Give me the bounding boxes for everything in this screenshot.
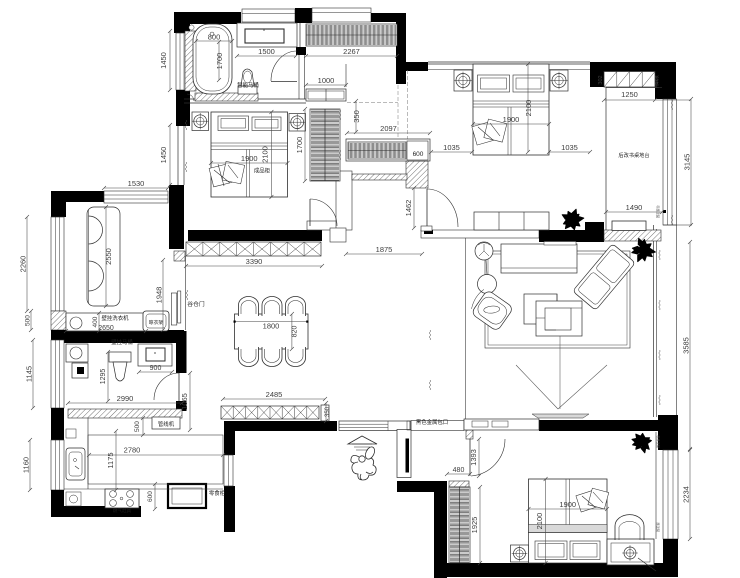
svg-text:1900: 1900 (559, 500, 576, 509)
svg-text:1700: 1700 (295, 137, 304, 154)
svg-text:1500: 1500 (258, 47, 275, 56)
svg-text:2100: 2100 (535, 513, 544, 530)
svg-text:2485: 2485 (266, 390, 283, 399)
svg-text:1700: 1700 (215, 53, 224, 70)
svg-text:1800: 1800 (263, 322, 280, 331)
svg-text:500: 500 (134, 421, 141, 432)
svg-text:820: 820 (292, 326, 299, 338)
svg-text:2097: 2097 (380, 124, 397, 133)
svg-text:3145: 3145 (683, 154, 692, 171)
svg-text:壁挂洗衣机: 壁挂洗衣机 (102, 314, 130, 322)
svg-text:壁挂马桶: 壁挂马桶 (111, 338, 133, 346)
svg-text:2550: 2550 (104, 248, 113, 265)
svg-text:谷仓门: 谷仓门 (187, 300, 205, 308)
svg-text:固定窗台: 固定窗台 (655, 435, 660, 448)
svg-text:302: 302 (598, 75, 604, 84)
svg-text:2100: 2100 (524, 100, 533, 117)
svg-text:2100: 2100 (260, 146, 269, 163)
svg-text:500: 500 (25, 315, 32, 326)
svg-text:1948: 1948 (155, 287, 164, 304)
svg-text:1490: 1490 (626, 203, 643, 212)
svg-text:1462: 1462 (404, 200, 413, 217)
svg-text:2990: 2990 (117, 394, 134, 403)
svg-text:1035: 1035 (561, 143, 578, 152)
svg-text:黑色金属包口: 黑色金属包口 (416, 418, 448, 426)
svg-text:固定窗台: 固定窗台 (655, 205, 660, 218)
svg-text:3390: 3390 (246, 257, 263, 266)
svg-text:升降晾衣: 升降晾衣 (654, 74, 659, 88)
svg-text:1450: 1450 (159, 147, 168, 164)
svg-text:2780: 2780 (124, 446, 141, 455)
svg-text:2267: 2267 (343, 47, 360, 56)
svg-text:1250: 1250 (621, 90, 638, 99)
svg-text:后改书桌地台: 后改书桌地台 (618, 151, 649, 159)
svg-text:1900: 1900 (241, 154, 258, 163)
svg-text:600: 600 (413, 151, 424, 158)
svg-text:1175: 1175 (106, 452, 115, 468)
svg-text:1295: 1295 (100, 369, 107, 385)
svg-text:零食柜: 零食柜 (209, 489, 226, 497)
svg-text:晾衣架: 晾衣架 (149, 319, 164, 326)
svg-text:1145: 1145 (25, 366, 34, 382)
svg-text:1450: 1450 (159, 52, 168, 69)
svg-text:600: 600 (147, 491, 154, 502)
svg-text:管线机: 管线机 (158, 420, 175, 428)
svg-text:2260: 2260 (19, 256, 28, 273)
svg-text:2650: 2650 (98, 325, 114, 332)
svg-text:1065: 1065 (180, 393, 189, 410)
svg-text:1925: 1925 (470, 517, 479, 534)
svg-text:350: 350 (325, 406, 331, 417)
svg-text:1900: 1900 (503, 115, 520, 124)
svg-text:2234: 2234 (682, 486, 691, 503)
svg-text:成品柜: 成品柜 (254, 167, 271, 175)
svg-text:350: 350 (352, 110, 361, 123)
svg-text:1875: 1875 (376, 245, 393, 254)
svg-text:1160: 1160 (22, 457, 31, 473)
svg-text:1000: 1000 (318, 76, 335, 85)
svg-text:燃气灶具: 燃气灶具 (113, 507, 132, 514)
svg-text:3585: 3585 (682, 337, 691, 354)
svg-text:智能马桶: 智能马桶 (237, 81, 259, 89)
svg-text:480: 480 (453, 467, 465, 474)
svg-text:800: 800 (208, 33, 221, 42)
svg-text:1035: 1035 (443, 143, 460, 152)
svg-text:1530: 1530 (128, 179, 145, 188)
svg-text:900: 900 (150, 365, 162, 372)
svg-text:1393: 1393 (469, 449, 478, 466)
svg-text:固定窗: 固定窗 (655, 522, 660, 532)
